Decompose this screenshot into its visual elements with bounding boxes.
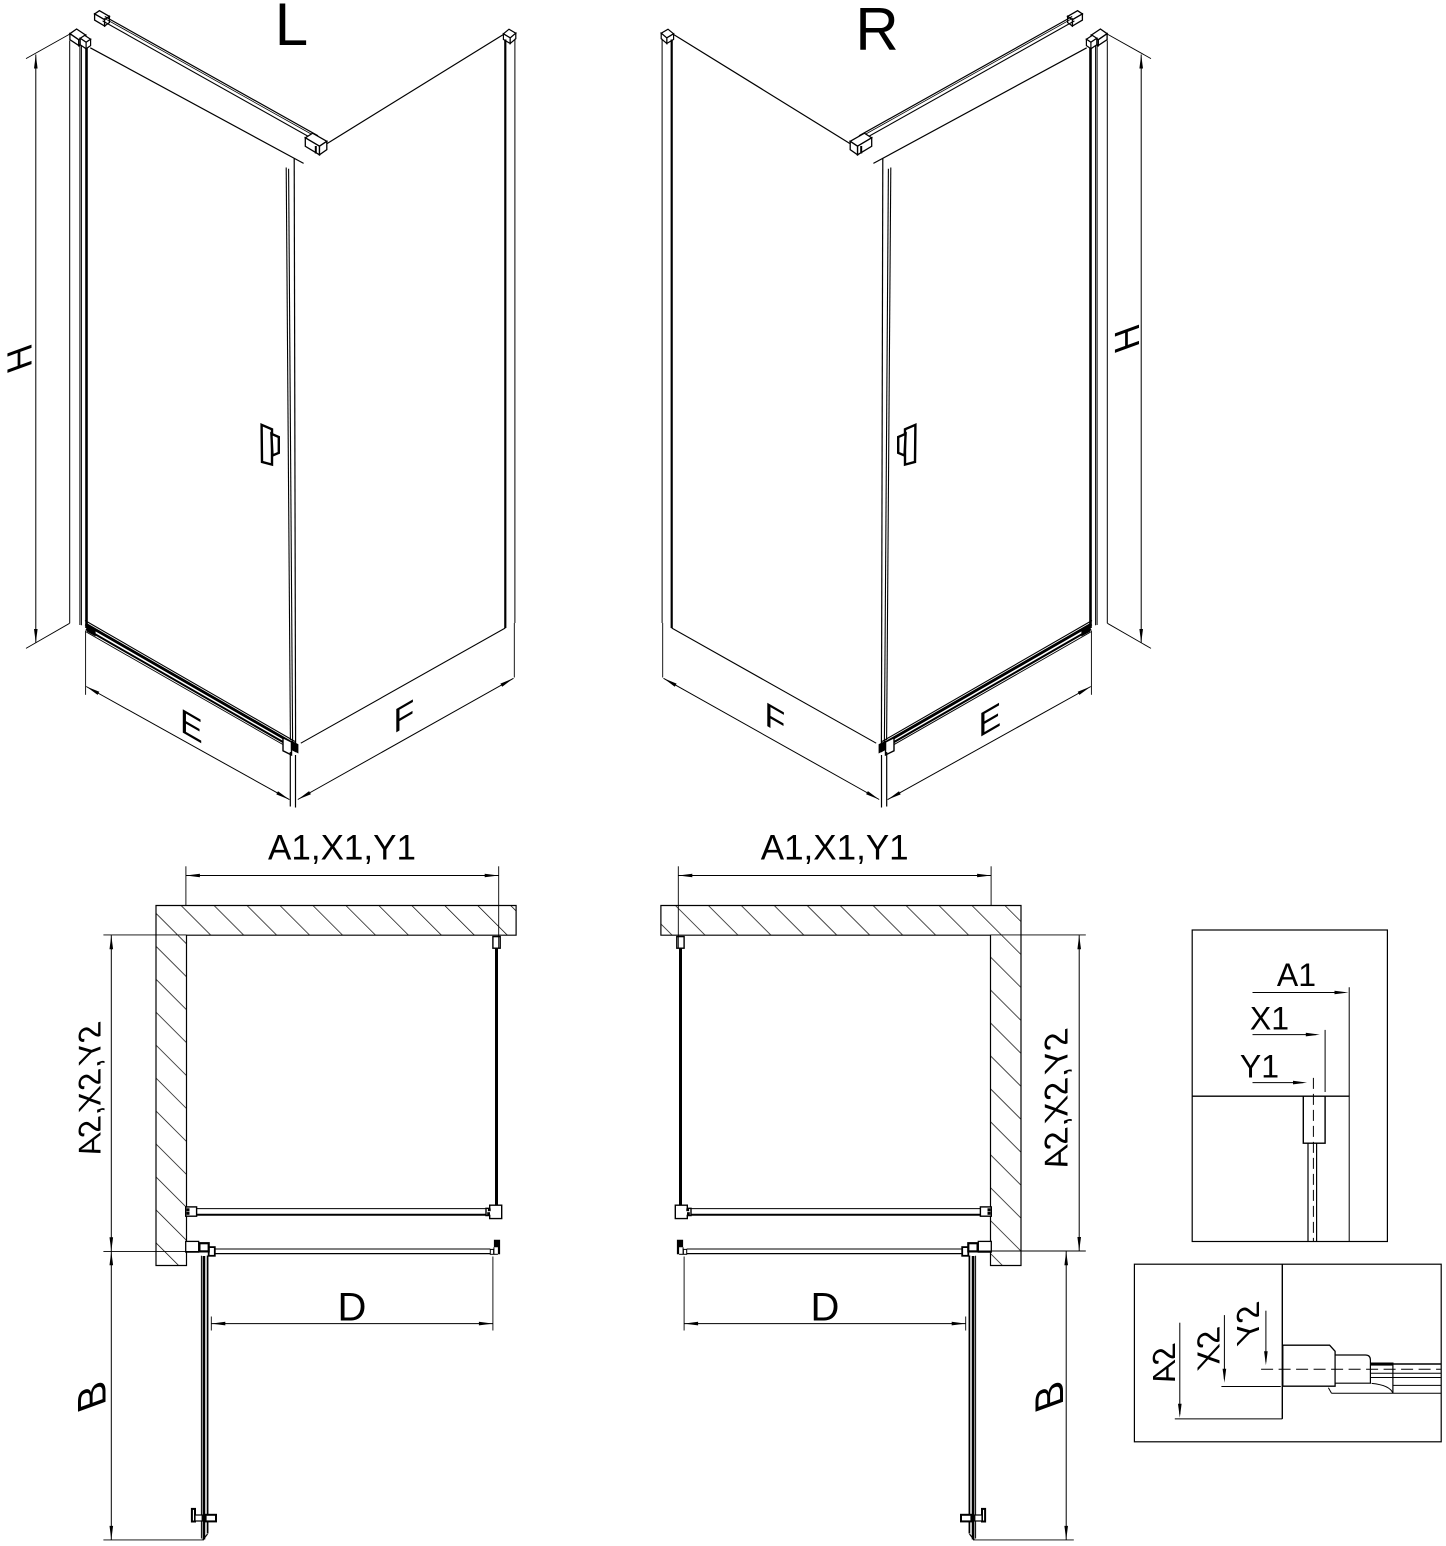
svg-text:A2,X2,Y2: A2,X2,Y2 [1038,1024,1075,1177]
svg-text:Y1: Y1 [1240,1049,1279,1085]
svg-text:R: R [855,0,898,63]
svg-text:A1: A1 [1277,957,1316,993]
svg-text:A2,X2,Y2: A2,X2,Y2 [72,1017,107,1163]
svg-text:X1: X1 [1250,1001,1289,1037]
svg-text:D: D [338,1286,367,1330]
svg-text:D: D [811,1286,840,1330]
svg-text:A1,X1,Y1: A1,X1,Y1 [761,829,909,868]
svg-text:A1,X1,Y1: A1,X1,Y1 [268,829,416,868]
svg-text:L: L [275,0,308,58]
